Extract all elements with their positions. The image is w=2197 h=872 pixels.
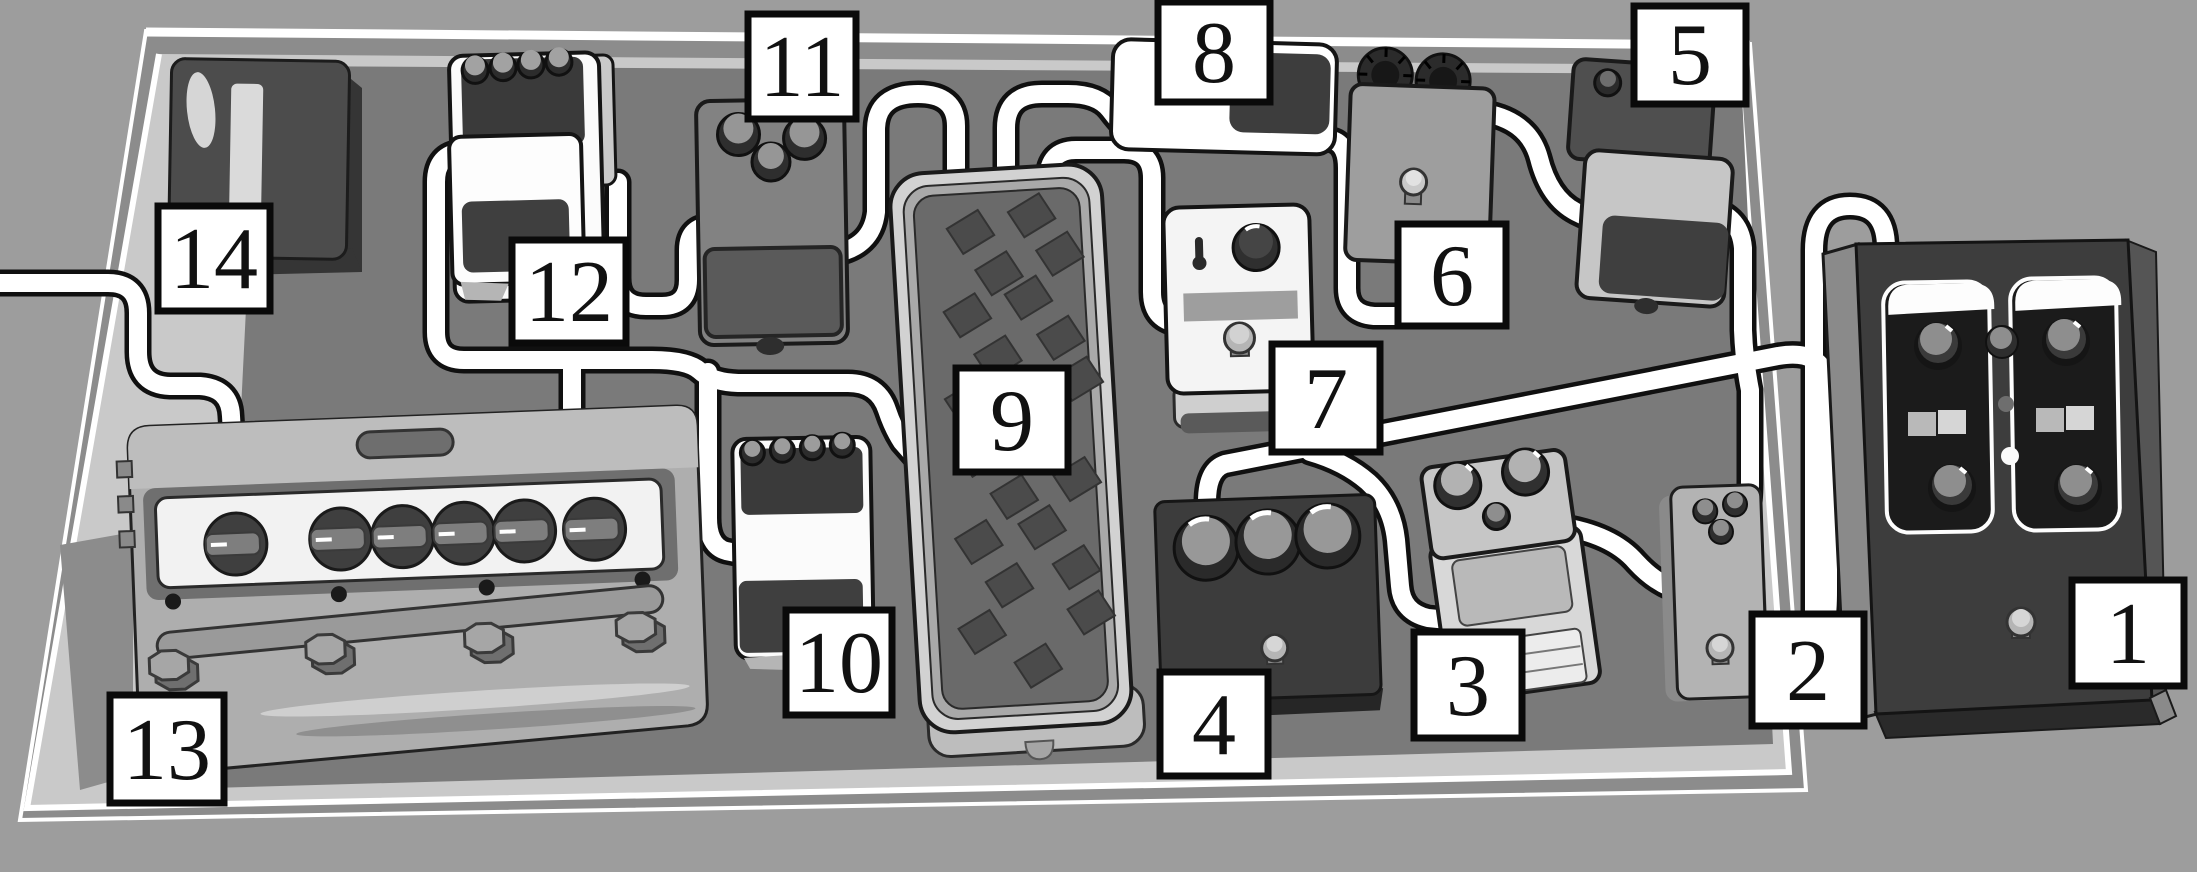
- svg-text:5: 5: [1668, 7, 1712, 104]
- svg-text:14: 14: [170, 211, 258, 308]
- svg-text:12: 12: [525, 244, 613, 341]
- svg-text:8: 8: [1192, 5, 1236, 102]
- svg-text:1: 1: [2106, 586, 2150, 683]
- svg-text:2: 2: [1786, 623, 1830, 720]
- svg-text:4: 4: [1192, 677, 1236, 774]
- svg-text:3: 3: [1446, 638, 1490, 735]
- svg-text:7: 7: [1304, 351, 1348, 448]
- svg-text:11: 11: [760, 19, 845, 116]
- svg-text:10: 10: [795, 615, 883, 712]
- svg-text:9: 9: [990, 373, 1034, 470]
- svg-text:6: 6: [1430, 228, 1474, 325]
- svg-text:13: 13: [123, 702, 211, 799]
